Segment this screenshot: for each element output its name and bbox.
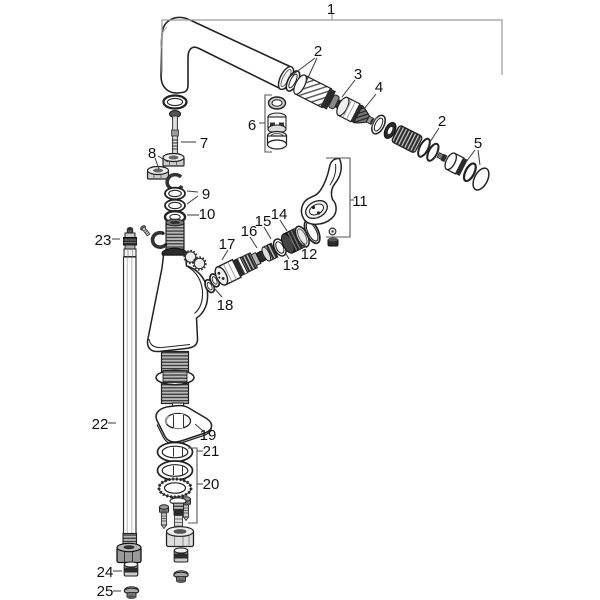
- plug-25: [124, 587, 138, 599]
- callout-5: 5: [474, 135, 482, 152]
- callout-8: 8: [148, 145, 156, 162]
- callout-18: 18: [217, 297, 234, 314]
- callout-7: 7: [200, 135, 208, 152]
- hose-connector-23: [124, 227, 137, 257]
- callout-24: 24: [97, 564, 114, 581]
- parts-diagram-page: 1 2 3 4 2 5 6 7 8 9 10 11 12 13 14 15 16…: [0, 0, 600, 600]
- toothed-washer-20: [159, 479, 191, 497]
- tiny-screw: [140, 225, 151, 237]
- filter-insert-center: [174, 548, 188, 562]
- callout-9: 9: [202, 186, 210, 203]
- callout-22: 22: [92, 416, 109, 433]
- exploded-parts-diagram: 1 2 3 4 2 5 6 7 8 9 10 11 12 13 14 15 16…: [0, 0, 600, 600]
- callout-14: 14: [271, 206, 288, 223]
- callout-1: 1: [327, 1, 335, 18]
- callout-20: 20: [203, 476, 220, 493]
- callout-21: 21: [203, 443, 220, 460]
- spout-connection-parts: [282, 69, 492, 193]
- fixing-screw-7: [170, 111, 181, 159]
- callout-2a: 2: [314, 43, 322, 60]
- seal-ring-lower: [158, 461, 193, 480]
- hex-union-nut-hose: [117, 543, 141, 562]
- callout-16: 16: [241, 223, 258, 240]
- callout-11: 11: [352, 193, 368, 210]
- circlip-body: [153, 232, 168, 247]
- callout-19: 19: [200, 427, 217, 444]
- callout-6: 6: [248, 117, 256, 134]
- o-rings-9: [165, 188, 185, 212]
- hex-nut-8a: [163, 154, 184, 167]
- aerator-set: [268, 97, 287, 149]
- hex-union-nut-center: [167, 527, 194, 547]
- seal-ring-21: [158, 443, 193, 462]
- supply-hose-22: [124, 257, 137, 534]
- callout-25: 25: [97, 583, 114, 600]
- callout-13: 13: [283, 257, 300, 274]
- body-ribbed-neck: [166, 219, 184, 249]
- threaded-shank: [156, 352, 194, 404]
- plug-center: [174, 571, 188, 583]
- spout-tube: [161, 17, 297, 93]
- callout-3: 3: [354, 66, 362, 83]
- hex-nut-8b: [148, 167, 169, 180]
- mounting-screw-left: [160, 505, 169, 529]
- lever-handle: [301, 158, 341, 224]
- callout-10: 10: [199, 206, 216, 223]
- callout-2b: 2: [438, 113, 446, 130]
- spout-o-ring: [164, 96, 187, 109]
- callout-23: 23: [95, 232, 112, 249]
- callout-12: 12: [301, 246, 318, 263]
- callout-4: 4: [375, 79, 383, 96]
- filter-insert-24: [124, 562, 138, 576]
- callout-17: 17: [219, 236, 236, 253]
